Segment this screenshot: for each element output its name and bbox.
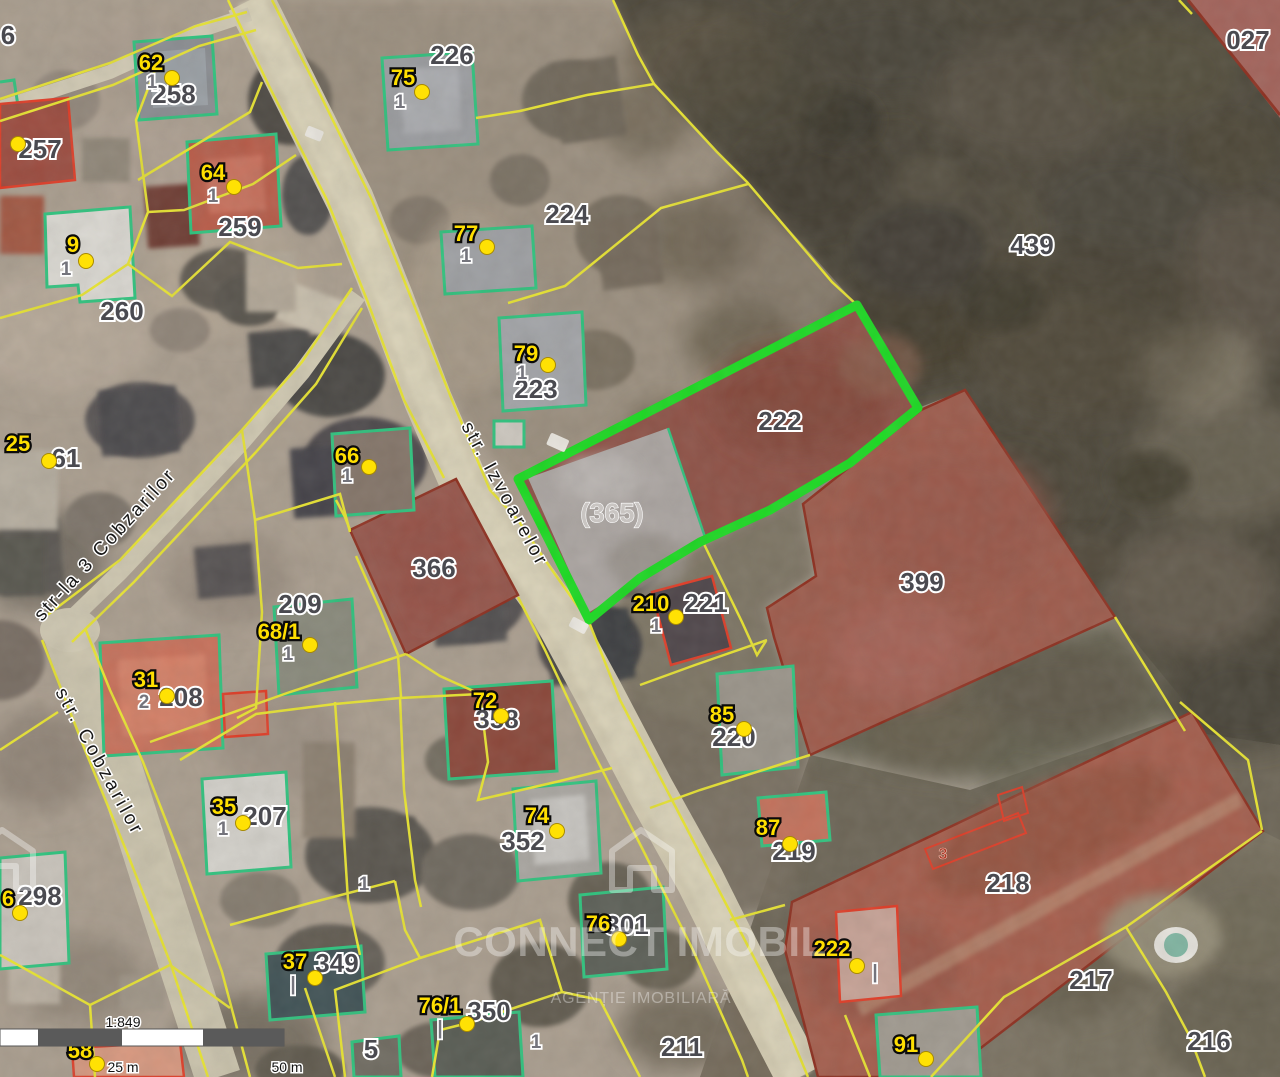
svg-text:1: 1 <box>359 874 370 895</box>
svg-text:AGENȚIE IMOBILIARĂ: AGENȚIE IMOBILIARĂ <box>551 988 732 1007</box>
svg-text:1: 1 <box>61 259 72 280</box>
svg-text:2: 2 <box>139 692 150 713</box>
svg-text:211: 211 <box>661 1032 703 1062</box>
svg-text:1: 1 <box>342 466 353 487</box>
svg-text:260: 260 <box>100 296 143 326</box>
svg-text:210: 210 <box>633 591 670 616</box>
svg-text:027: 027 <box>1226 25 1269 55</box>
svg-text:1: 1 <box>218 819 229 840</box>
svg-text:1: 1 <box>147 72 158 93</box>
svg-text:224: 224 <box>545 199 589 229</box>
svg-text:259: 259 <box>218 212 261 242</box>
svg-text:218: 218 <box>986 868 1029 898</box>
svg-text:1: 1 <box>651 616 662 637</box>
svg-text:366: 366 <box>412 553 455 583</box>
svg-text:64: 64 <box>201 160 226 185</box>
svg-text:50 m: 50 m <box>271 1059 302 1075</box>
svg-text:1: 1 <box>531 1032 542 1053</box>
svg-text:|: | <box>437 1018 442 1039</box>
svg-text:|: | <box>872 962 877 983</box>
svg-text:6: 6 <box>2 886 14 911</box>
svg-text:1: 1 <box>517 363 528 384</box>
svg-text:399: 399 <box>900 567 943 597</box>
svg-text:|: | <box>290 974 295 995</box>
svg-text:217: 217 <box>1069 965 1112 995</box>
svg-text:66: 66 <box>335 443 359 468</box>
svg-text:439: 439 <box>1010 230 1053 260</box>
svg-text:91: 91 <box>894 1032 918 1057</box>
svg-text:72: 72 <box>473 688 497 713</box>
svg-text:CONNECT IMOBIL: CONNECT IMOBIL <box>453 918 826 965</box>
svg-text:85: 85 <box>710 702 734 727</box>
svg-text:222: 222 <box>758 406 801 436</box>
svg-text:25: 25 <box>6 431 30 456</box>
svg-text:1: 1 <box>395 92 406 113</box>
svg-text:68/1: 68/1 <box>258 619 301 644</box>
svg-text:74: 74 <box>525 803 550 828</box>
svg-text:76/1: 76/1 <box>419 993 462 1018</box>
svg-text:1: 1 <box>283 644 294 665</box>
svg-text:1: 1 <box>208 186 219 207</box>
svg-text:3: 3 <box>939 846 948 863</box>
svg-text:35: 35 <box>212 794 236 819</box>
svg-text:226: 226 <box>430 40 473 70</box>
svg-text:25 m: 25 m <box>107 1059 138 1075</box>
svg-text:9: 9 <box>67 232 79 257</box>
svg-text:352: 352 <box>501 826 544 856</box>
svg-text:216: 216 <box>1187 1026 1230 1056</box>
svg-text:5: 5 <box>364 1034 378 1064</box>
svg-text:221: 221 <box>684 588 727 618</box>
svg-text:209: 209 <box>278 589 321 619</box>
svg-text:75: 75 <box>391 65 415 90</box>
svg-text:77: 77 <box>454 221 478 246</box>
svg-text:349: 349 <box>315 948 358 978</box>
svg-text:1: 1 <box>461 246 472 267</box>
svg-text:87: 87 <box>756 815 780 840</box>
svg-text:6: 6 <box>1 20 15 50</box>
svg-text:37: 37 <box>283 949 307 974</box>
svg-text:(365): (365) <box>580 498 643 528</box>
svg-text:31: 31 <box>134 667 158 692</box>
svg-text:1:849: 1:849 <box>105 1014 140 1030</box>
svg-text:257: 257 <box>18 134 61 164</box>
